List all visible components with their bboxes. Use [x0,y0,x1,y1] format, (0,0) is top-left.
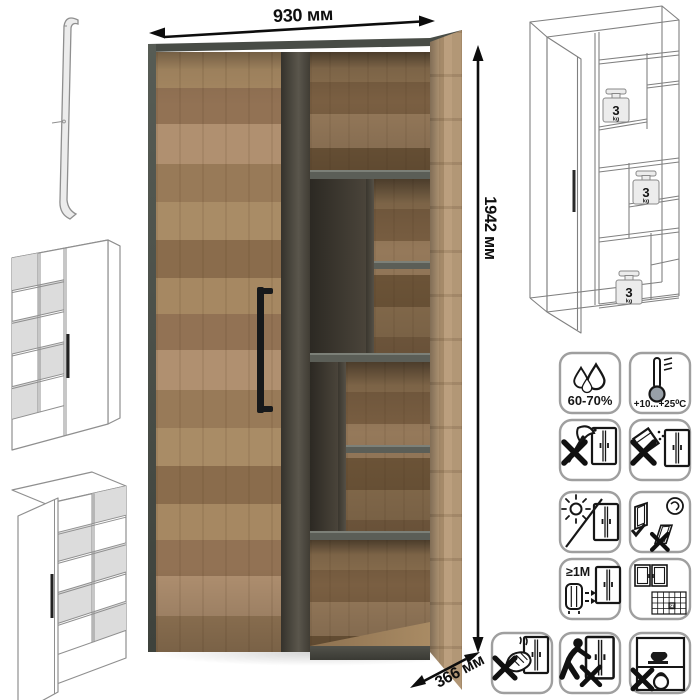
door-handle [257,287,264,413]
shelf-left-niche-upper [310,179,366,353]
furniture-product-sheet: 930 мм 1942 мм 366 мм 3 kg [0,0,694,700]
shelf-3 [310,353,430,362]
height-dimension-label: 1942 мм [480,172,499,284]
humidity-label: 60-70% [568,393,613,408]
min-distance-label: ≥1М [566,565,590,579]
wireframe-lines [530,6,679,333]
handle-outline [60,18,78,219]
shelf-5 [310,531,430,540]
sketch-door-handle [67,334,70,378]
width-dimension-label: 930 мм [258,3,349,27]
wireframe-door-handle [573,170,576,212]
shelf-2 [374,261,430,269]
cabinet-mid-panel [281,52,310,652]
cabinet-side-panel [430,30,462,692]
care-icon-grid: 60-70% +10...+25⁰C [482,346,694,698]
door-handle-foot-top [262,288,273,294]
shelf-left-niche-lower [310,362,338,531]
shelf-4 [346,445,430,453]
cabinet-wireframe-load-diagram: 3 kg [502,2,694,342]
shelf-back-top-compartment [310,52,430,170]
cabinet-sketch-door-right [2,226,134,466]
cabinet-sketch-door-open-left [0,462,140,700]
shelf-unit [310,60,430,682]
shelf-1 [310,170,430,179]
handle-mount-mark [52,122,62,124]
cabinet-left-edge [148,44,156,652]
handle-profile-sketch [38,4,98,234]
sketch-open-door [18,498,58,700]
door-handle-foot-bottom [262,406,273,412]
vertical-divider-upper [366,179,374,353]
no-overload-icon [633,638,684,690]
vertical-divider-lower [338,362,346,531]
temperature-label: +10...+25⁰C [634,399,686,410]
sketch-side-panel [108,240,120,424]
kettlebell-glyph [654,675,668,689]
sketch-door-handle [51,574,54,618]
cabinet-photo [148,30,462,694]
calendar-day-label: 21 [669,604,675,609]
